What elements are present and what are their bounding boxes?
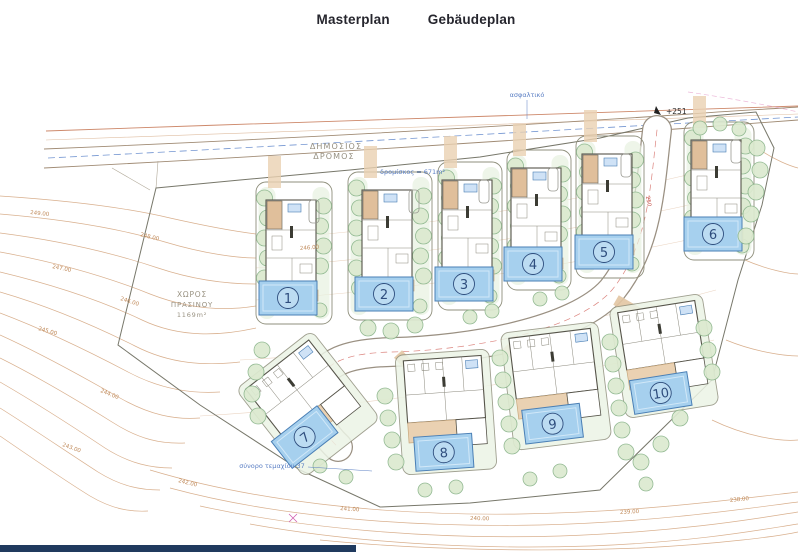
contour-elevation-label: 247.00 — [52, 264, 73, 274]
plot-number-1: 1 — [284, 292, 292, 307]
tree-icon — [449, 480, 463, 494]
spot-height-label: +251 — [666, 107, 687, 116]
tree-icon — [463, 310, 477, 324]
plot-4: 4 — [504, 124, 571, 290]
contour-elevation-label: 244.00 — [99, 388, 120, 401]
tree-icon — [633, 454, 649, 470]
tree-icon — [749, 140, 765, 156]
tree-icon — [523, 472, 537, 486]
boundary-note: σύνορο τεμαχίου 37 — [239, 462, 305, 470]
tree-icon — [639, 477, 653, 491]
contour-elevation-label: 241.00 — [340, 506, 360, 513]
tree-icon — [700, 342, 716, 358]
tree-icon — [254, 342, 270, 358]
tree-icon — [418, 483, 432, 497]
driveway — [444, 136, 457, 168]
tree-icon — [380, 410, 396, 426]
tree-icon — [492, 350, 508, 366]
tree-icon — [738, 228, 754, 244]
public-road-label-2: ΔΡΟΜΟΣ — [313, 152, 354, 161]
driveway — [364, 146, 377, 178]
tree-icon — [485, 304, 499, 318]
road-area-note: δρομίσκος = 671m² — [380, 168, 445, 176]
driveway — [513, 124, 526, 156]
contour-elevation-label: 246.00 — [119, 296, 140, 308]
tree-icon — [713, 117, 727, 131]
tree-icon — [501, 416, 517, 432]
plot-8: 8 — [395, 349, 497, 475]
plot-5: 5 — [575, 110, 644, 278]
green-space-label-1: ΧΩΡΟΣ — [177, 290, 207, 299]
tree-icon — [555, 286, 569, 300]
plot-number-10: 10 — [652, 386, 671, 403]
contour-elevation-label: 240.00 — [470, 516, 490, 522]
tree-icon — [533, 292, 547, 306]
tree-icon — [608, 378, 624, 394]
contour-elevation-label: 248.00 — [140, 232, 161, 243]
tree-icon — [602, 334, 618, 350]
tree-icon — [611, 400, 627, 416]
tree-icon — [672, 410, 688, 426]
tree-icon — [416, 228, 432, 244]
tree-icon — [748, 184, 764, 200]
tree-icon — [743, 206, 759, 222]
tree-icon — [377, 388, 393, 404]
contour-elevation-label: 245.00 — [37, 326, 58, 337]
bottom-partial-bar — [0, 545, 356, 552]
plot-number-8: 8 — [439, 446, 448, 462]
tree-icon — [693, 121, 707, 135]
tree-icon — [383, 323, 399, 339]
tree-icon — [696, 320, 712, 336]
plot-number-2: 2 — [380, 288, 388, 303]
tree-icon — [339, 470, 353, 484]
tree-icon — [407, 317, 423, 333]
tree-icon — [248, 364, 264, 380]
public-road-label-1: ΔΗΜΟΣΙΟΣ — [310, 142, 362, 151]
tab-gebaeudeplan[interactable]: Gebäudeplan — [428, 12, 516, 27]
tree-icon — [416, 268, 432, 284]
tree-icon — [360, 320, 376, 336]
green-space-label-2: ΠΡΑΣΙΝΟΥ — [171, 301, 213, 309]
tree-icon — [313, 459, 327, 473]
plot-number-4: 4 — [529, 258, 537, 273]
view-tabs: Masterplan Gebäudeplan — [0, 12, 800, 27]
tree-icon — [388, 454, 404, 470]
tree-icon — [250, 408, 266, 424]
green-space-area-label: 1169m² — [177, 311, 207, 319]
survey-cross — [289, 514, 297, 522]
tree-icon — [413, 299, 427, 313]
tree-icon — [384, 432, 400, 448]
driveway — [268, 156, 281, 188]
contour-elevation-label: 243.00 — [61, 442, 82, 454]
plot-9: 9 — [500, 321, 612, 450]
plot-number-5: 5 — [600, 246, 608, 261]
contour-elevation-label: 239.00 — [620, 509, 640, 516]
tree-icon — [413, 208, 429, 224]
masterplan-drawing: 12345678910 249.00248.00247.00246.00245.… — [0, 0, 800, 552]
tree-icon — [498, 394, 514, 410]
tree-icon — [553, 464, 567, 478]
tree-icon — [704, 364, 720, 380]
tree-icon — [605, 356, 621, 372]
contour-elevation-label: 242.00 — [178, 478, 199, 489]
driveway — [584, 110, 597, 142]
tree-icon — [413, 248, 429, 264]
tree-icon — [653, 436, 669, 452]
tree-icon — [244, 386, 260, 402]
plot-number-6: 6 — [709, 228, 717, 243]
plot-number-3: 3 — [460, 278, 468, 293]
plot-3: 3 — [435, 136, 502, 310]
tree-icon — [495, 372, 511, 388]
tab-masterplan[interactable]: Masterplan — [317, 12, 390, 27]
tree-icon — [618, 444, 634, 460]
tree-icon — [752, 162, 768, 178]
tree-icon — [504, 438, 520, 454]
tree-icon — [732, 122, 746, 136]
tree-icon — [614, 422, 630, 438]
surface-note: ασφαλτικό — [510, 91, 545, 99]
contour-elevation-label: 238.00 — [730, 496, 750, 504]
plot-1: 1 — [256, 156, 332, 324]
